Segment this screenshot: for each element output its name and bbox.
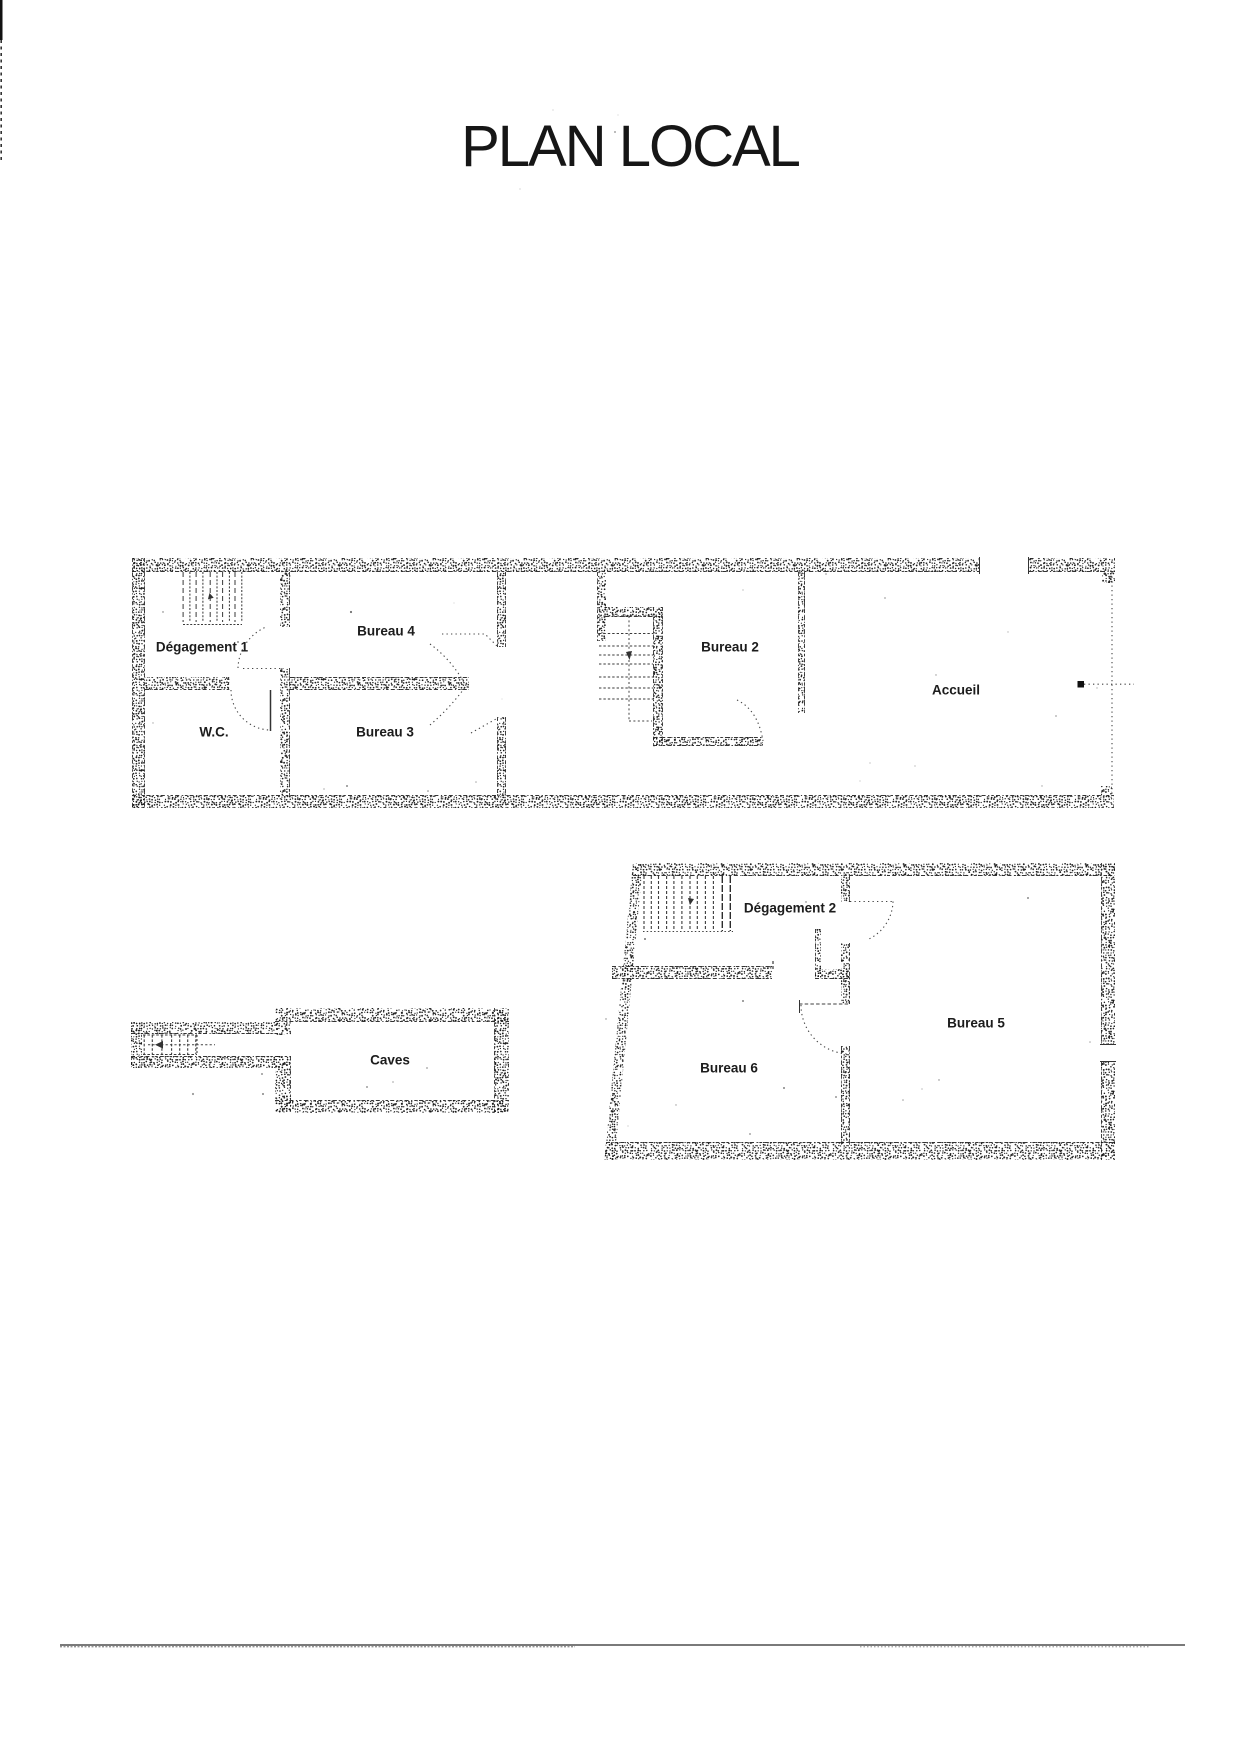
svg-text:Dégagement 2: Dégagement 2 — [744, 901, 836, 916]
svg-text:Bureau 4: Bureau 4 — [357, 624, 415, 639]
svg-text:Bureau 3: Bureau 3 — [356, 725, 414, 740]
svg-text:Caves: Caves — [370, 1053, 410, 1068]
svg-text:Accueil: Accueil — [932, 683, 980, 698]
svg-text:Bureau 5: Bureau 5 — [947, 1016, 1005, 1031]
svg-text:Dégagement 1: Dégagement 1 — [156, 640, 249, 655]
svg-text:W.C.: W.C. — [199, 725, 228, 740]
svg-text:Bureau 2: Bureau 2 — [701, 640, 759, 655]
svg-text:Bureau 6: Bureau 6 — [700, 1061, 758, 1076]
svg-text:PLAN LOCAL: PLAN LOCAL — [461, 114, 800, 179]
